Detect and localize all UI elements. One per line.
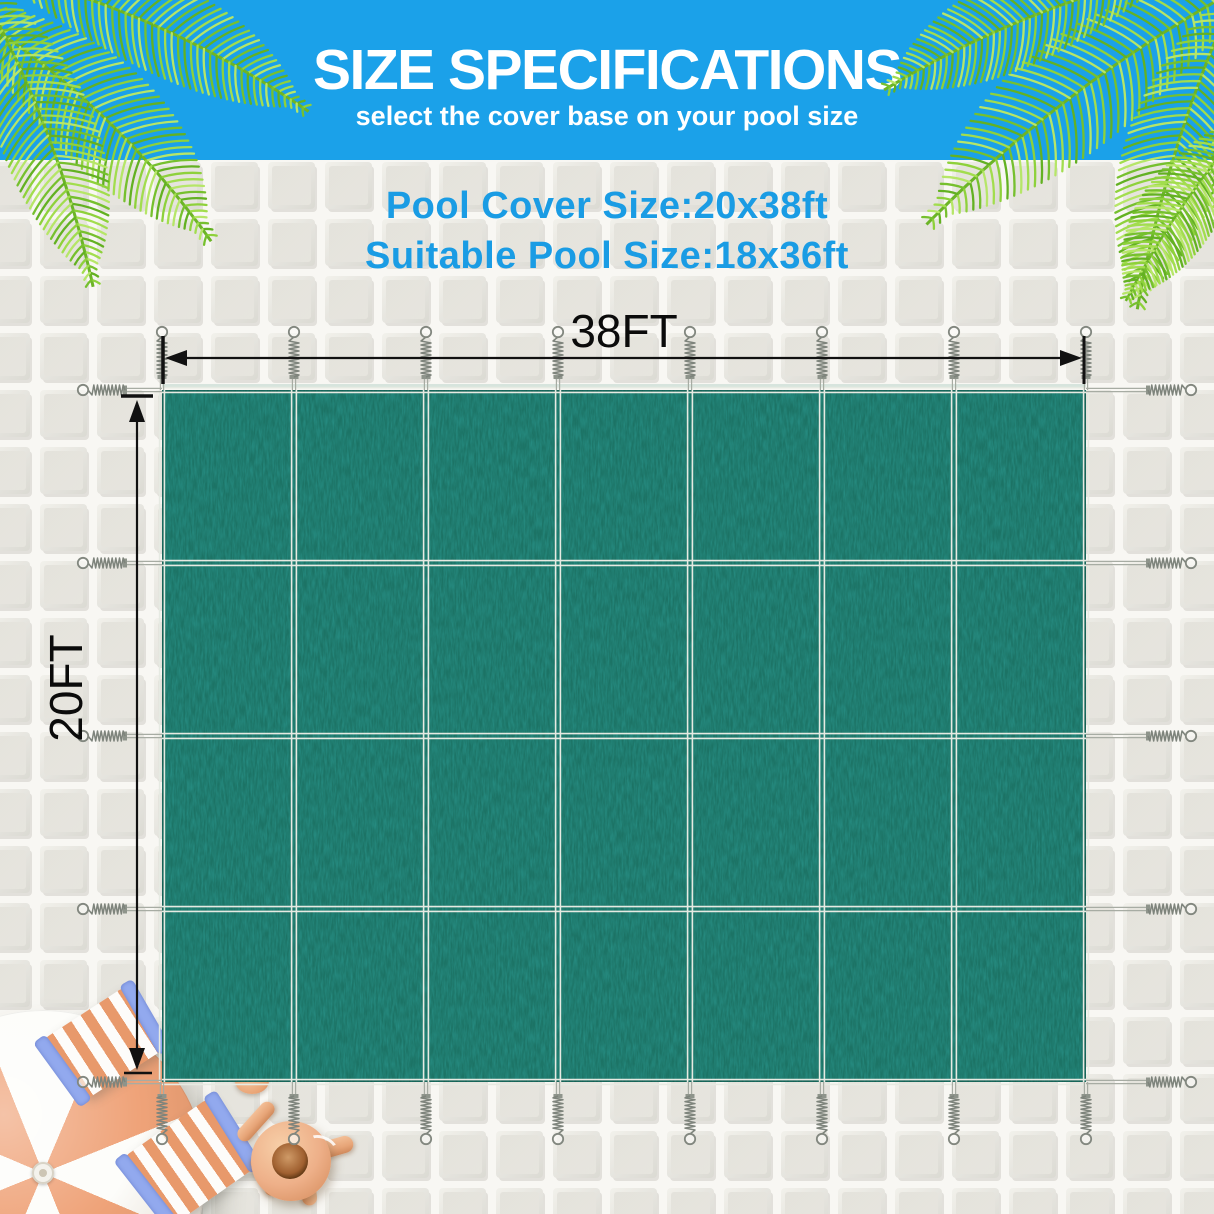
anchor-ring-icon — [78, 558, 88, 568]
anchor-spring — [157, 1082, 167, 1144]
arrowhead-down-icon — [129, 1048, 145, 1070]
arrowhead-up-icon — [129, 400, 145, 422]
anchor-spring — [78, 558, 162, 568]
spring-coil-icon — [553, 1096, 563, 1134]
anchor-ring-icon — [553, 327, 563, 337]
anchor-spring — [78, 904, 162, 914]
anchor-ring-icon — [553, 1134, 563, 1144]
page-subtitle: select the cover base on your pool size — [0, 100, 1214, 132]
anchor-ring-icon — [685, 1134, 695, 1144]
anchor-ring-icon — [289, 327, 299, 337]
anchor-ring-icon — [817, 1134, 827, 1144]
anchor-ring-icon — [685, 327, 695, 337]
spring-coil-icon — [1148, 385, 1186, 395]
spring-coil-icon — [1148, 731, 1186, 741]
spring-coil-icon — [817, 1096, 827, 1134]
anchor-ring-icon — [1186, 385, 1196, 395]
pool-size-text: Suitable Pool Size:18x36ft — [0, 236, 1214, 276]
anchor-spring — [1086, 558, 1196, 568]
anchor-ring-icon — [289, 1134, 299, 1144]
anchor-ring-icon — [157, 1134, 167, 1144]
header-banner: SIZE SPECIFICATIONS select the cover bas… — [0, 0, 1214, 160]
spring-coil-icon — [157, 1096, 167, 1134]
anchor-spring — [1081, 1082, 1091, 1144]
anchor-ring-icon — [1081, 327, 1091, 337]
anchor-spring — [1086, 385, 1196, 395]
spring-coil-icon — [88, 904, 125, 914]
anchor-spring — [817, 1082, 827, 1144]
anchor-spring — [685, 1082, 695, 1144]
anchor-ring-icon — [1186, 1077, 1196, 1087]
anchor-ring-icon — [421, 1134, 431, 1144]
arrowhead-left-icon — [165, 350, 187, 366]
anchor-spring — [1086, 1077, 1196, 1087]
anchor-spring — [421, 1082, 431, 1144]
spring-coil-icon — [88, 731, 125, 741]
anchor-spring — [949, 1082, 959, 1144]
poster: 38FT 20FT SIZE SPECIFICATIONS select the… — [0, 0, 1214, 1214]
anchor-ring-icon — [421, 327, 431, 337]
anchor-spring — [289, 1082, 299, 1144]
spring-coil-icon — [1081, 1096, 1091, 1134]
anchor-ring-icon — [949, 1134, 959, 1144]
anchor-spring — [1086, 731, 1196, 741]
anchor-spring — [553, 1082, 563, 1144]
pool-cover-texture — [162, 390, 1086, 1082]
anchor-ring-icon — [949, 327, 959, 337]
spring-coil-icon — [88, 558, 125, 568]
anchor-spring — [1086, 904, 1196, 914]
anchor-ring-icon — [78, 1077, 88, 1087]
page-title: SIZE SPECIFICATIONS — [0, 40, 1214, 100]
width-dimension: 38FT — [163, 305, 1084, 384]
anchor-ring-icon — [1186, 731, 1196, 741]
height-dimension-label: 20FT — [40, 634, 92, 741]
spring-coil-icon — [88, 385, 125, 395]
spring-coil-icon — [289, 1096, 299, 1134]
spring-coil-icon — [685, 1096, 695, 1134]
spring-coil-icon — [421, 1096, 431, 1134]
anchor-ring-icon — [1186, 558, 1196, 568]
anchor-ring-icon — [78, 904, 88, 914]
anchor-ring-icon — [157, 327, 167, 337]
anchor-ring-icon — [1186, 904, 1196, 914]
anchor-spring — [1081, 327, 1091, 390]
spring-coil-icon — [1148, 558, 1186, 568]
size-diagram: 38FT 20FT — [0, 0, 1214, 1214]
spring-coil-icon — [88, 1077, 125, 1087]
anchor-spring — [78, 385, 162, 395]
spring-coil-icon — [1148, 1077, 1186, 1087]
anchor-ring-icon — [817, 327, 827, 337]
width-dimension-label: 38FT — [570, 305, 677, 357]
cover-size-text: Pool Cover Size:20x38ft — [0, 186, 1214, 226]
spring-coil-icon — [949, 1096, 959, 1134]
arrowhead-right-icon — [1060, 350, 1082, 366]
anchor-spring — [78, 1077, 162, 1087]
anchor-ring-icon — [1081, 1134, 1091, 1144]
spring-coil-icon — [1148, 904, 1186, 914]
anchor-ring-icon — [78, 385, 88, 395]
